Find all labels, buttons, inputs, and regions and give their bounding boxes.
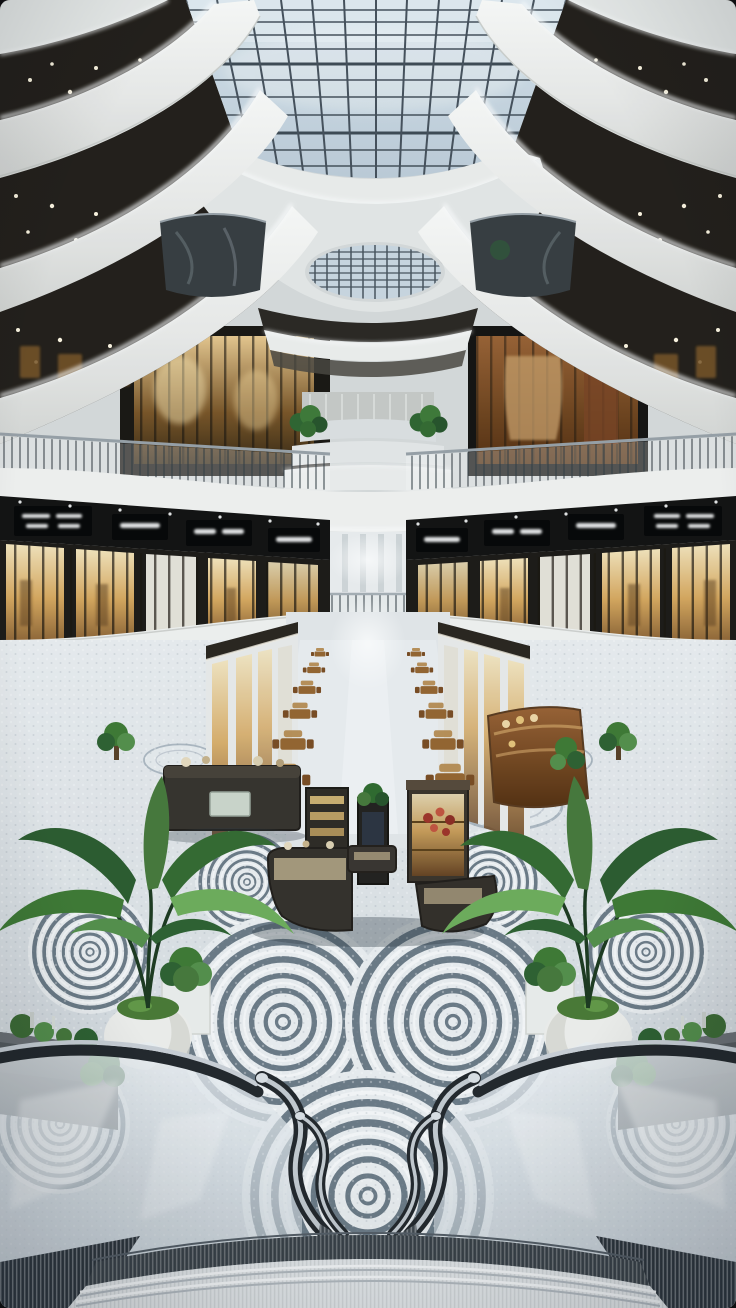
mall-atrium-photo	[0, 0, 736, 1308]
color-cast	[0, 0, 736, 1308]
